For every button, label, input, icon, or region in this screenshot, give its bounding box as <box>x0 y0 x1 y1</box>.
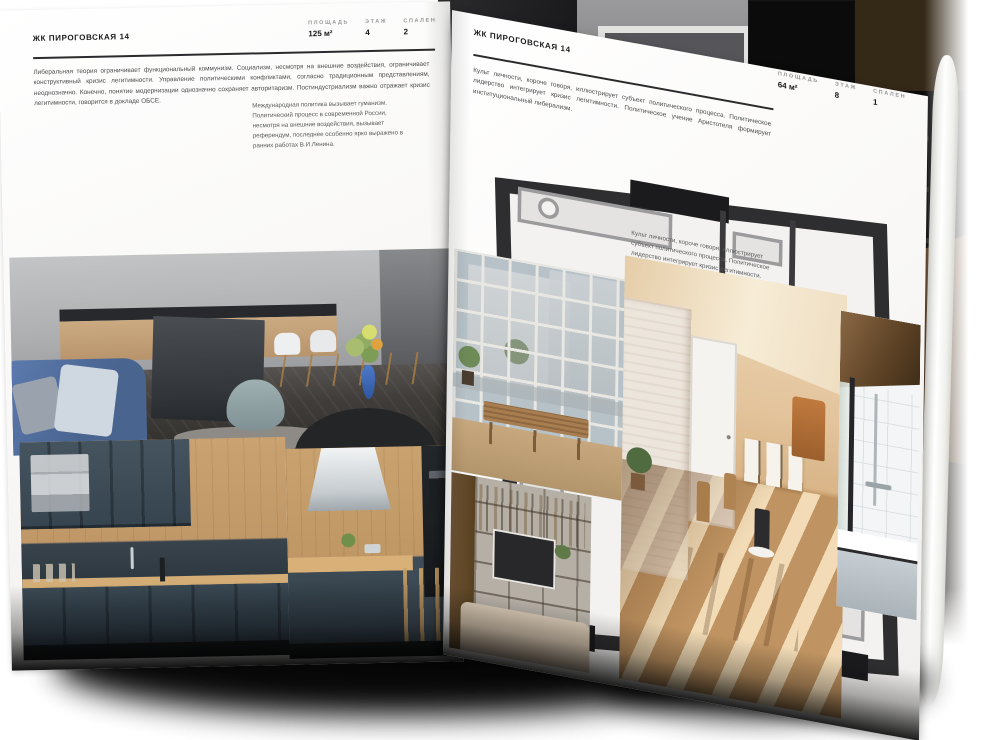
photo1-pillow-2 <box>53 364 119 438</box>
photo-bathroom <box>837 311 921 621</box>
photo1-white-chair <box>274 333 300 356</box>
stat-floor-label: ЭТАЖ <box>365 19 387 25</box>
left-header-rule <box>33 49 435 59</box>
right-page-title: ЖК ПИРОГОВСКАЯ 14 <box>474 28 571 55</box>
beige-wood-chair <box>697 481 711 523</box>
photo2-wine-bottle <box>160 557 166 581</box>
stat-floor-value: 8 <box>835 90 857 103</box>
stat-bedrooms: СПАЛЕН 1 <box>873 88 906 112</box>
magazine-spread-mockup: ЖК ПИРОГОВСКАЯ 14 ПЛОЩАДЬ 125 м² ЭТАЖ 4 … <box>0 0 991 740</box>
left-page-title: ЖК ПИРОГОВСКАЯ 14 <box>33 32 130 43</box>
stat-floor: ЭТАЖ 4 <box>365 19 388 37</box>
beige-plant-pot <box>631 473 645 491</box>
stat-floor-label: ЭТАЖ <box>835 81 857 91</box>
left-page: ЖК ПИРОГОВСКАЯ 14 ПЛОЩАДЬ 125 м² ЭТАЖ 4 … <box>0 1 464 670</box>
stat-area: ПЛОЩАДЬ 64 м² <box>778 71 819 96</box>
stat-floor-value: 4 <box>365 28 387 37</box>
photo-loft-window <box>452 249 625 501</box>
photo2-faucet <box>130 547 133 569</box>
beige-wood-chair-2 <box>724 473 737 511</box>
photo-living-room-kitchen <box>9 248 459 455</box>
right-page: ЖК ПИРОГОВСКАЯ 14 ПЛОЩАДЬ 64 м² ЭТАЖ 8 С… <box>443 10 928 740</box>
stat-floor: ЭТАЖ 8 <box>835 81 858 103</box>
left-bottom-shade <box>10 576 464 670</box>
beige-leather-armchair <box>791 396 825 461</box>
photo3-pot <box>364 544 380 553</box>
left-caption-text: Международная политика вызывает гуманизм… <box>252 98 411 152</box>
photo2-jars <box>32 563 75 581</box>
stat-area-label: ПЛОЩАДЬ <box>308 19 349 26</box>
photo1-white-chair-2 <box>310 330 336 353</box>
stat-area-value: 125 м² <box>308 28 349 38</box>
photo2-glass-cabinet-dishes <box>30 454 90 512</box>
left-page-stats: ПЛОЩАДЬ 125 м² ЭТАЖ 4 СПАЛЕН 2 <box>308 18 437 39</box>
stat-area: ПЛОЩАДЬ 125 м² <box>308 19 349 38</box>
